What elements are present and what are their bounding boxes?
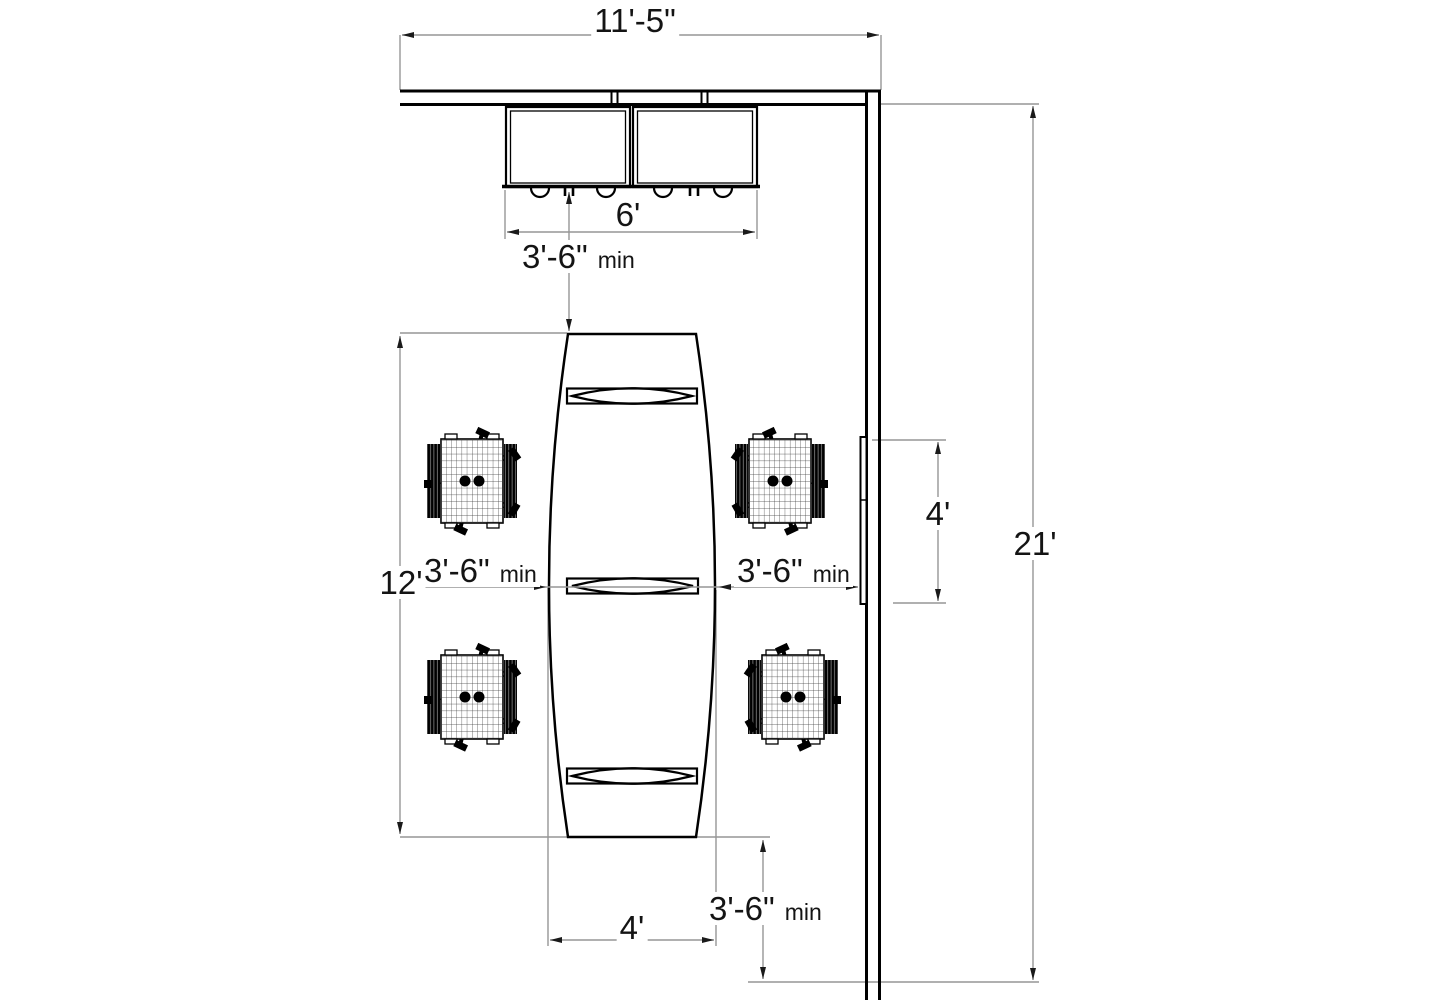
dim-value: 3'-6" bbox=[737, 554, 803, 587]
task-chair bbox=[744, 643, 841, 752]
dim-clearance-top-label: 3'-6" min bbox=[519, 240, 638, 273]
plan-linework bbox=[0, 0, 1435, 1000]
dim-cabinet-run-label: 6' bbox=[613, 198, 644, 231]
cabinet-right bbox=[633, 107, 757, 187]
dim-panel-length-label: 4' bbox=[923, 497, 954, 530]
dim-table-zone-depth-label: 12' bbox=[376, 566, 425, 599]
task-chair bbox=[424, 643, 521, 752]
wall-cabinets bbox=[502, 92, 760, 197]
dim-qualifier: min bbox=[598, 249, 635, 272]
dim-value: 11'-5" bbox=[594, 4, 676, 37]
table-power-module bbox=[567, 768, 697, 784]
dim-room-depth-label: 21' bbox=[1010, 527, 1059, 560]
dim-table-width-label: 4' bbox=[617, 911, 648, 944]
dim-value: 6' bbox=[616, 198, 641, 231]
dim-clearance-left-label: 3'-6" min bbox=[421, 554, 540, 587]
dim-value: 4' bbox=[926, 497, 951, 530]
dim-clearance-right-label: 3'-6" min bbox=[734, 554, 853, 587]
cabinet-left bbox=[506, 107, 630, 187]
dim-clearance-bottom-label: 3'-6" min bbox=[706, 892, 825, 925]
dim-value: 3'-6" bbox=[709, 892, 775, 925]
top-wall bbox=[400, 91, 881, 105]
task-chair bbox=[731, 427, 828, 536]
dim-qualifier: min bbox=[785, 901, 822, 924]
dim-value: 3'-6" bbox=[522, 240, 588, 273]
dim-qualifier: min bbox=[500, 563, 537, 586]
conference-table bbox=[549, 334, 715, 837]
wall-panel bbox=[861, 437, 867, 604]
task-chair bbox=[424, 427, 521, 536]
floor-plan: 11'-5" 6' 3'-6" min 12' 3'-6" min 3'-6" … bbox=[0, 0, 1435, 1000]
table-power-module bbox=[567, 578, 698, 594]
dim-room-depth bbox=[748, 104, 1039, 982]
dim-room-width-label: 11'-5" bbox=[591, 4, 679, 37]
dim-value: 4' bbox=[620, 911, 645, 944]
dim-value: 21' bbox=[1013, 527, 1056, 560]
dim-room-width bbox=[400, 35, 881, 90]
right-wall bbox=[867, 91, 880, 1000]
dim-value: 12' bbox=[379, 566, 422, 599]
table-power-module bbox=[567, 388, 697, 404]
dim-value: 3'-6" bbox=[424, 554, 490, 587]
dim-qualifier: min bbox=[813, 563, 850, 586]
